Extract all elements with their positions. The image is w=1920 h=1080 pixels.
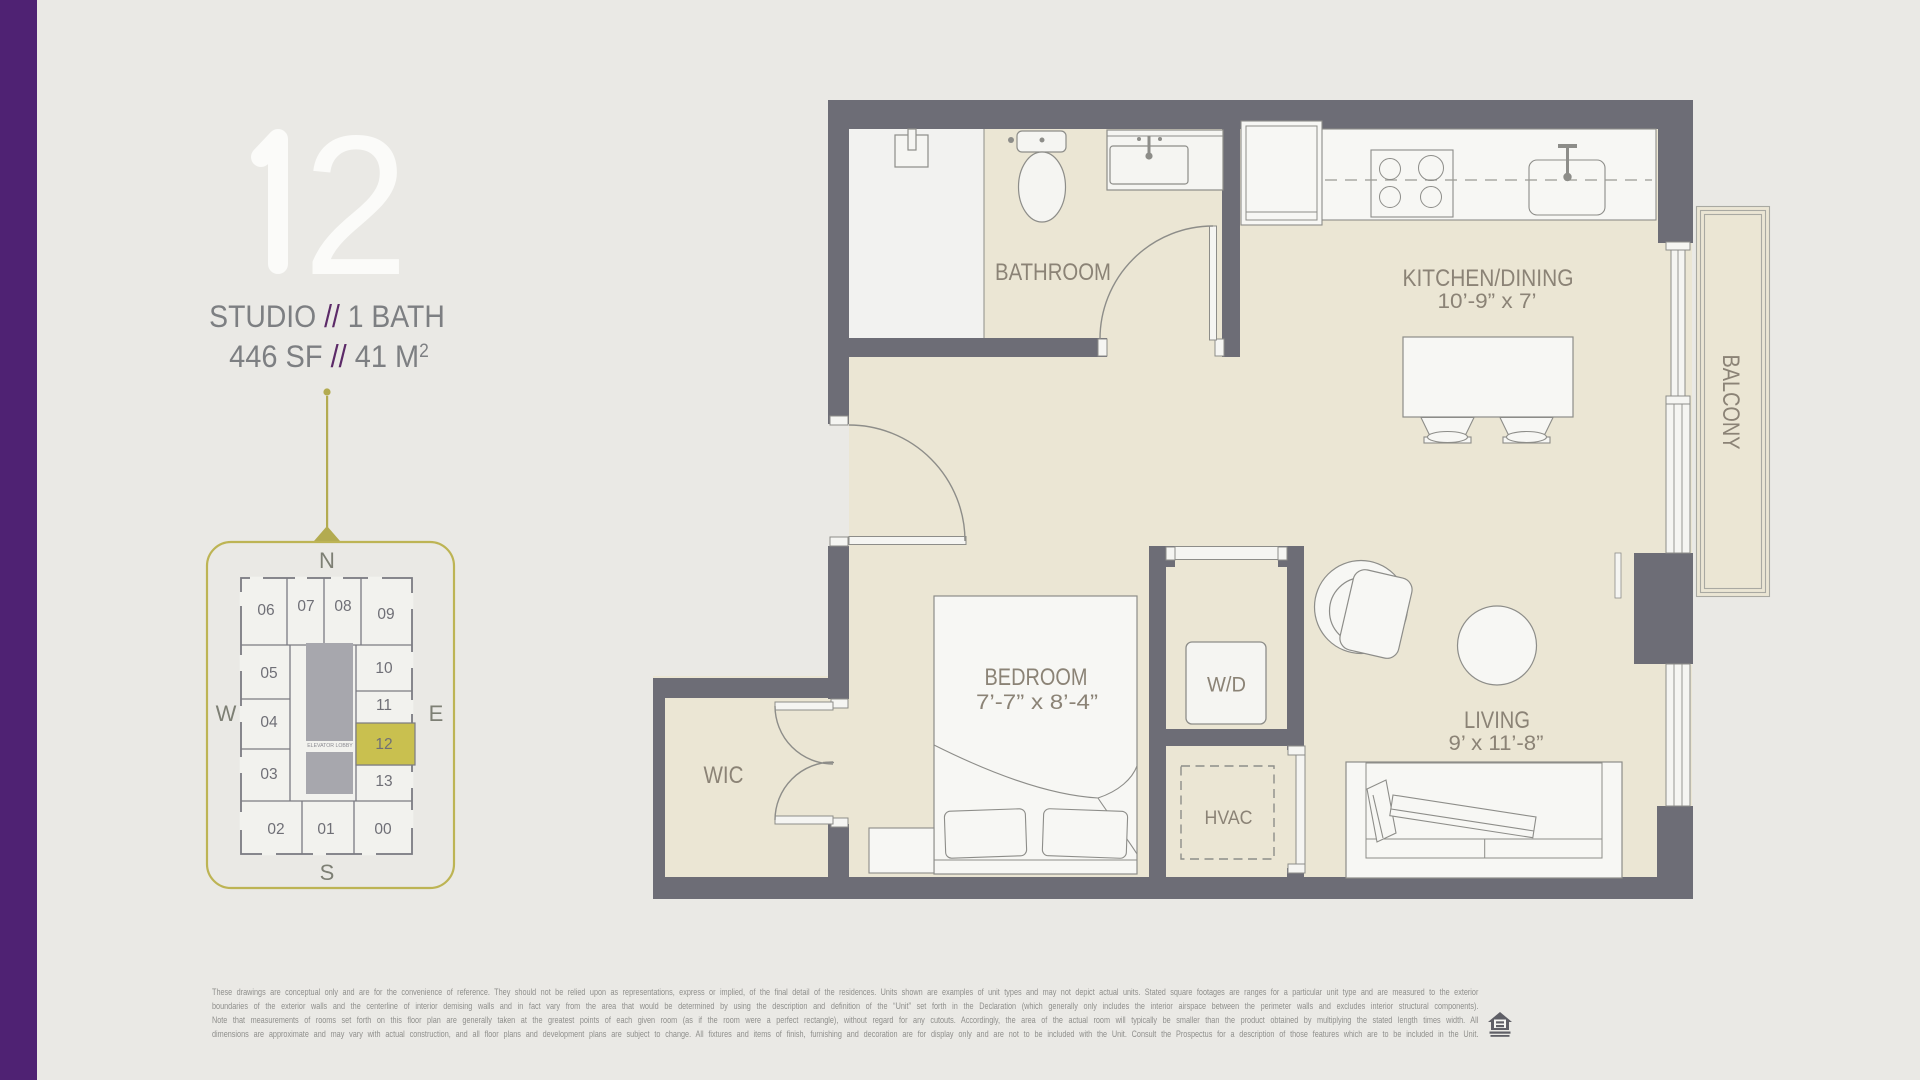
svg-text:BALCONY: BALCONY [1717,355,1743,450]
svg-text:01: 01 [317,821,334,838]
svg-text:04: 04 [260,714,278,731]
svg-text:08: 08 [334,598,351,615]
svg-text:N: N [319,548,335,573]
svg-text:00: 00 [374,821,392,838]
svg-text:13: 13 [375,773,392,790]
svg-text:ELEVATOR LOBBY: ELEVATOR LOBBY [307,743,353,749]
svg-text:11: 11 [376,697,392,714]
svg-text:07: 07 [297,598,314,615]
svg-text:LIVING: LIVING [1464,708,1530,734]
svg-text:12: 12 [375,736,392,753]
svg-text:10’-9” x 7’: 10’-9” x 7’ [1438,290,1537,313]
svg-text:HVAC: HVAC [1205,807,1253,829]
svg-text:BATHROOM: BATHROOM [995,260,1111,286]
svg-text:03: 03 [260,766,277,783]
svg-text:02: 02 [267,821,284,838]
svg-text:9’ x 11’-8”: 9’ x 11’-8” [1449,732,1544,755]
svg-text:W: W [216,701,237,726]
svg-text:BEDROOM: BEDROOM [985,665,1088,691]
svg-text:KITCHEN/DINING: KITCHEN/DINING [1403,266,1574,292]
svg-text:09: 09 [377,606,394,623]
svg-text:STUDIO // 1 BATH: STUDIO // 1 BATH [209,300,445,335]
svg-text:7’-7” x 8’-4”: 7’-7” x 8’-4” [976,691,1098,714]
svg-text:446 SF // 41 M2: 446 SF // 41 M2 [229,339,429,374]
svg-text:E: E [429,701,444,726]
svg-text:10: 10 [375,660,393,677]
svg-text:2: 2 [303,95,408,317]
svg-text:W/D: W/D [1207,674,1246,697]
svg-text:06: 06 [257,602,274,619]
svg-text:WIC: WIC [704,762,744,789]
svg-text:S: S [320,860,335,885]
svg-text:05: 05 [260,665,277,682]
